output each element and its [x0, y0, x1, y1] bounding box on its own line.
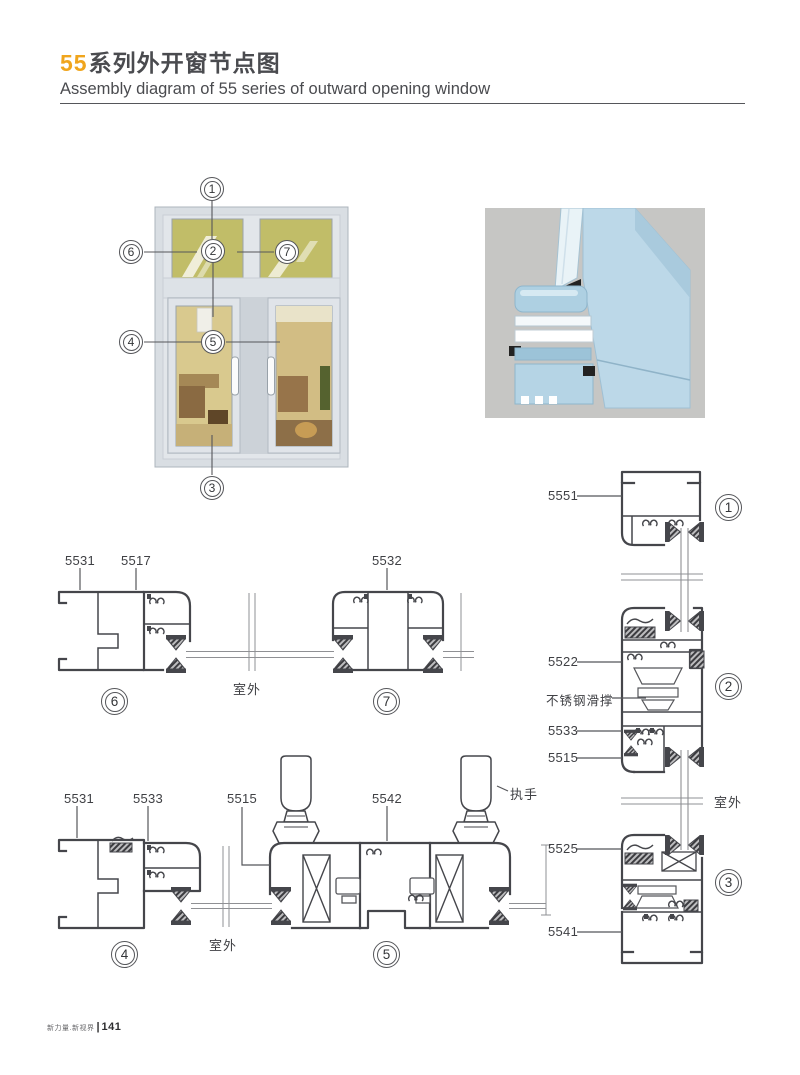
profile-3d-drawing	[485, 208, 705, 418]
friction-stay-bottom	[636, 886, 678, 908]
page-subtitle: Assembly diagram of 55 series of outward…	[60, 80, 490, 99]
section-drawings	[40, 450, 800, 980]
casement-handle-right	[268, 357, 275, 395]
detail-circle-3: 3	[715, 869, 742, 896]
detail-6-drawing	[59, 592, 190, 673]
part-label-5531-d4: 5531	[57, 791, 101, 806]
handle-label-d5: 执手	[510, 784, 538, 803]
detail-circle-2: 2	[715, 673, 742, 700]
part-label-5532-d7: 5532	[365, 553, 409, 568]
header-rule	[60, 103, 745, 104]
handle-profile-left	[273, 756, 319, 843]
callout-2: 2	[201, 239, 225, 263]
detail-circle-6: 6	[101, 688, 128, 715]
part-label-5531-d6: 5531	[58, 553, 102, 568]
footer-divider: |	[96, 1021, 99, 1033]
glass-detail-6-7	[186, 652, 474, 658]
part-label-5515-d2: 5515	[548, 750, 578, 765]
outdoor-label-d3: 室外	[714, 792, 742, 811]
callout-7: 7	[275, 240, 299, 264]
render-profile-extrusion	[509, 286, 595, 404]
part-label-5515-d5: 5515	[220, 791, 264, 806]
label-leader-lines	[77, 496, 646, 932]
part-label-5533-d2: 5533	[548, 723, 578, 738]
handle-profile-right	[453, 756, 499, 843]
callout-1: 1	[200, 177, 224, 201]
part-label-5551-d1: 5551	[548, 488, 578, 503]
detail-3-drawing	[622, 835, 704, 963]
footer-page-number: 141	[102, 1021, 122, 1033]
outdoor-label-d6: 室外	[233, 679, 261, 698]
detail-1-drawing	[622, 472, 704, 545]
callout-6: 6	[119, 240, 143, 264]
profile-3d-render	[485, 208, 705, 418]
page-footer: 新力量.新视界 | 141	[47, 1021, 121, 1033]
callout-5: 5	[201, 330, 225, 354]
callout-4: 4	[119, 330, 143, 354]
page-title: 55系列外开窗节点图	[60, 44, 281, 78]
detail-7-drawing	[333, 592, 443, 673]
part-label-5517-d6: 5517	[114, 553, 158, 568]
detail-circle-5: 5	[373, 941, 400, 968]
render-sash-face	[583, 208, 690, 408]
detail-4-drawing	[59, 837, 200, 928]
detail-circle-7: 7	[373, 688, 400, 715]
part-label-5541-d3: 5541	[548, 924, 578, 939]
glass-right-column	[681, 528, 688, 850]
catalog-page: { "page": { "title_highlight": "55", "ti…	[0, 0, 800, 1075]
part-label-5533-d4: 5533	[126, 791, 170, 806]
part-label-5522-d2: 5522	[548, 654, 578, 669]
detail-5-drawing	[270, 756, 510, 928]
footer-brand: 新力量.新视界	[47, 1023, 94, 1033]
casement-handle-left	[232, 357, 239, 395]
friction-stay	[634, 668, 682, 710]
break-lines-6-7	[249, 593, 461, 671]
casement-sashes	[167, 297, 340, 454]
title-series-number: 55	[60, 50, 88, 76]
outdoor-label-d4: 室外	[209, 935, 237, 954]
detail-circle-4: 4	[111, 941, 138, 968]
detail-2-drawing	[622, 608, 704, 772]
part-label-5525-d3: 5525	[548, 841, 578, 856]
title-text: 系列外开窗节点图	[89, 50, 281, 76]
friction-stay-label-d2: 不锈钢滑撑	[546, 690, 614, 709]
glass-detail-4-5	[191, 904, 546, 909]
part-label-5542-d5: 5542	[365, 791, 409, 806]
detail-circle-1: 1	[715, 494, 742, 521]
